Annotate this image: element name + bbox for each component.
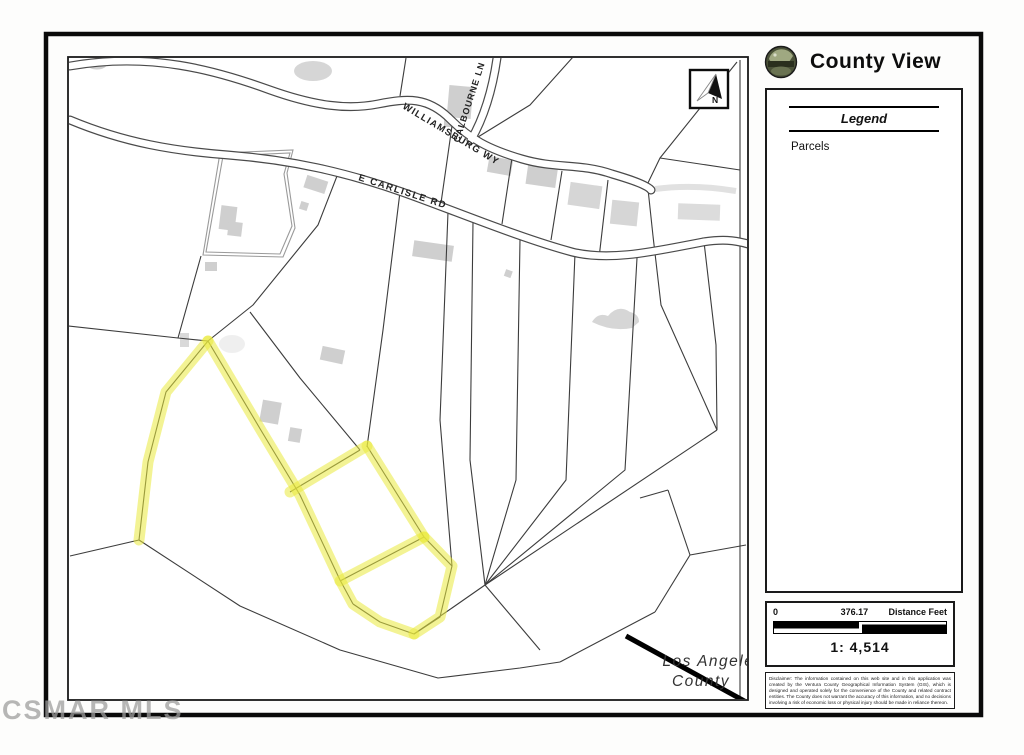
report-header: County View xyxy=(764,42,974,82)
scale-units: Distance Feet xyxy=(888,607,947,617)
map-report-page: WILLIAMSBURG WY CALBOURNE LN E CARLISLE … xyxy=(0,0,1024,755)
scale-panel: 0 376.17 Distance Feet 1: 4,514 xyxy=(765,601,955,667)
scale-bar-right-segment xyxy=(862,622,947,633)
jurisdiction-label-line2: County xyxy=(672,673,730,690)
scale-labels: 0 376.17 Distance Feet xyxy=(767,607,953,618)
legend-title: Legend xyxy=(789,106,939,132)
north-arrow: N xyxy=(690,70,728,108)
north-label: N xyxy=(712,95,718,105)
scale-midpoint: 376.17 xyxy=(841,607,869,617)
county-seal-icon xyxy=(764,45,798,79)
scale-zero: 0 xyxy=(773,607,778,617)
disclaimer-text: Disclaimer: The information contained on… xyxy=(769,676,951,705)
scale-bar-left-segment xyxy=(774,622,862,633)
legend-panel: Legend Parcels xyxy=(765,88,963,593)
legend-item-parcels: Parcels xyxy=(791,141,961,153)
scale-ratio: 1: 4,514 xyxy=(767,639,953,655)
page-title: County View xyxy=(810,50,941,74)
disclaimer-panel: Disclaimer: The information contained on… xyxy=(765,672,955,709)
watermark: CSMAR MLS xyxy=(2,695,184,726)
scale-bar xyxy=(773,621,947,634)
